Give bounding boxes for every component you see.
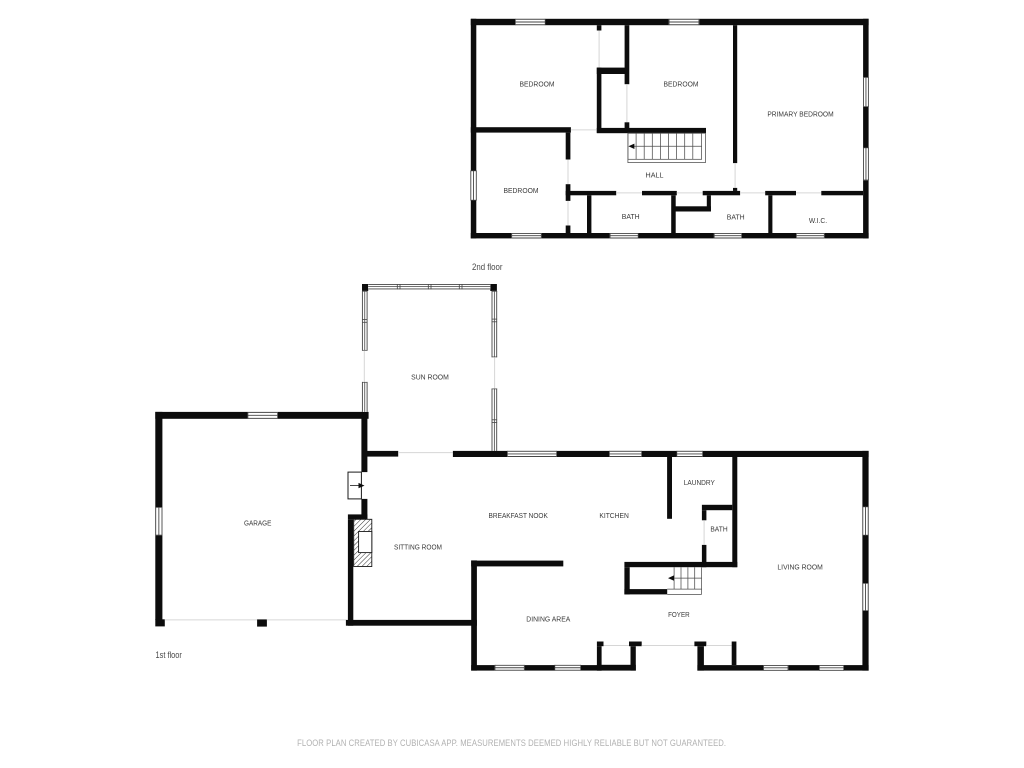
svg-text:2nd floor: 2nd floor — [472, 262, 503, 272]
svg-text:PRIMARY BEDROOM: PRIMARY BEDROOM — [767, 110, 833, 119]
svg-text:SUN ROOM: SUN ROOM — [411, 373, 449, 382]
svg-text:HALL: HALL — [646, 171, 664, 180]
svg-text:1st floor: 1st floor — [156, 650, 182, 660]
svg-text:LAUNDRY: LAUNDRY — [684, 478, 715, 487]
svg-text:SITTING ROOM: SITTING ROOM — [394, 543, 442, 552]
svg-text:BATH: BATH — [727, 212, 745, 221]
svg-text:W.I.C.: W.I.C. — [809, 216, 827, 225]
svg-text:BATH: BATH — [710, 524, 727, 533]
svg-text:FLOOR PLAN CREATED BY CUBICASA: FLOOR PLAN CREATED BY CUBICASA APP. MEAS… — [297, 738, 726, 748]
svg-text:KITCHEN: KITCHEN — [599, 511, 629, 520]
svg-text:BEDROOM: BEDROOM — [504, 186, 539, 195]
svg-text:BREAKFAST NOOK: BREAKFAST NOOK — [489, 511, 548, 520]
svg-text:BEDROOM: BEDROOM — [520, 80, 555, 89]
svg-text:FOYER: FOYER — [668, 610, 690, 619]
svg-text:LIVING ROOM: LIVING ROOM — [777, 563, 822, 572]
svg-text:BEDROOM: BEDROOM — [664, 80, 699, 89]
svg-text:DINING AREA: DINING AREA — [526, 615, 570, 624]
svg-text:GARAGE: GARAGE — [244, 519, 272, 528]
svg-text:BATH: BATH — [622, 212, 640, 221]
